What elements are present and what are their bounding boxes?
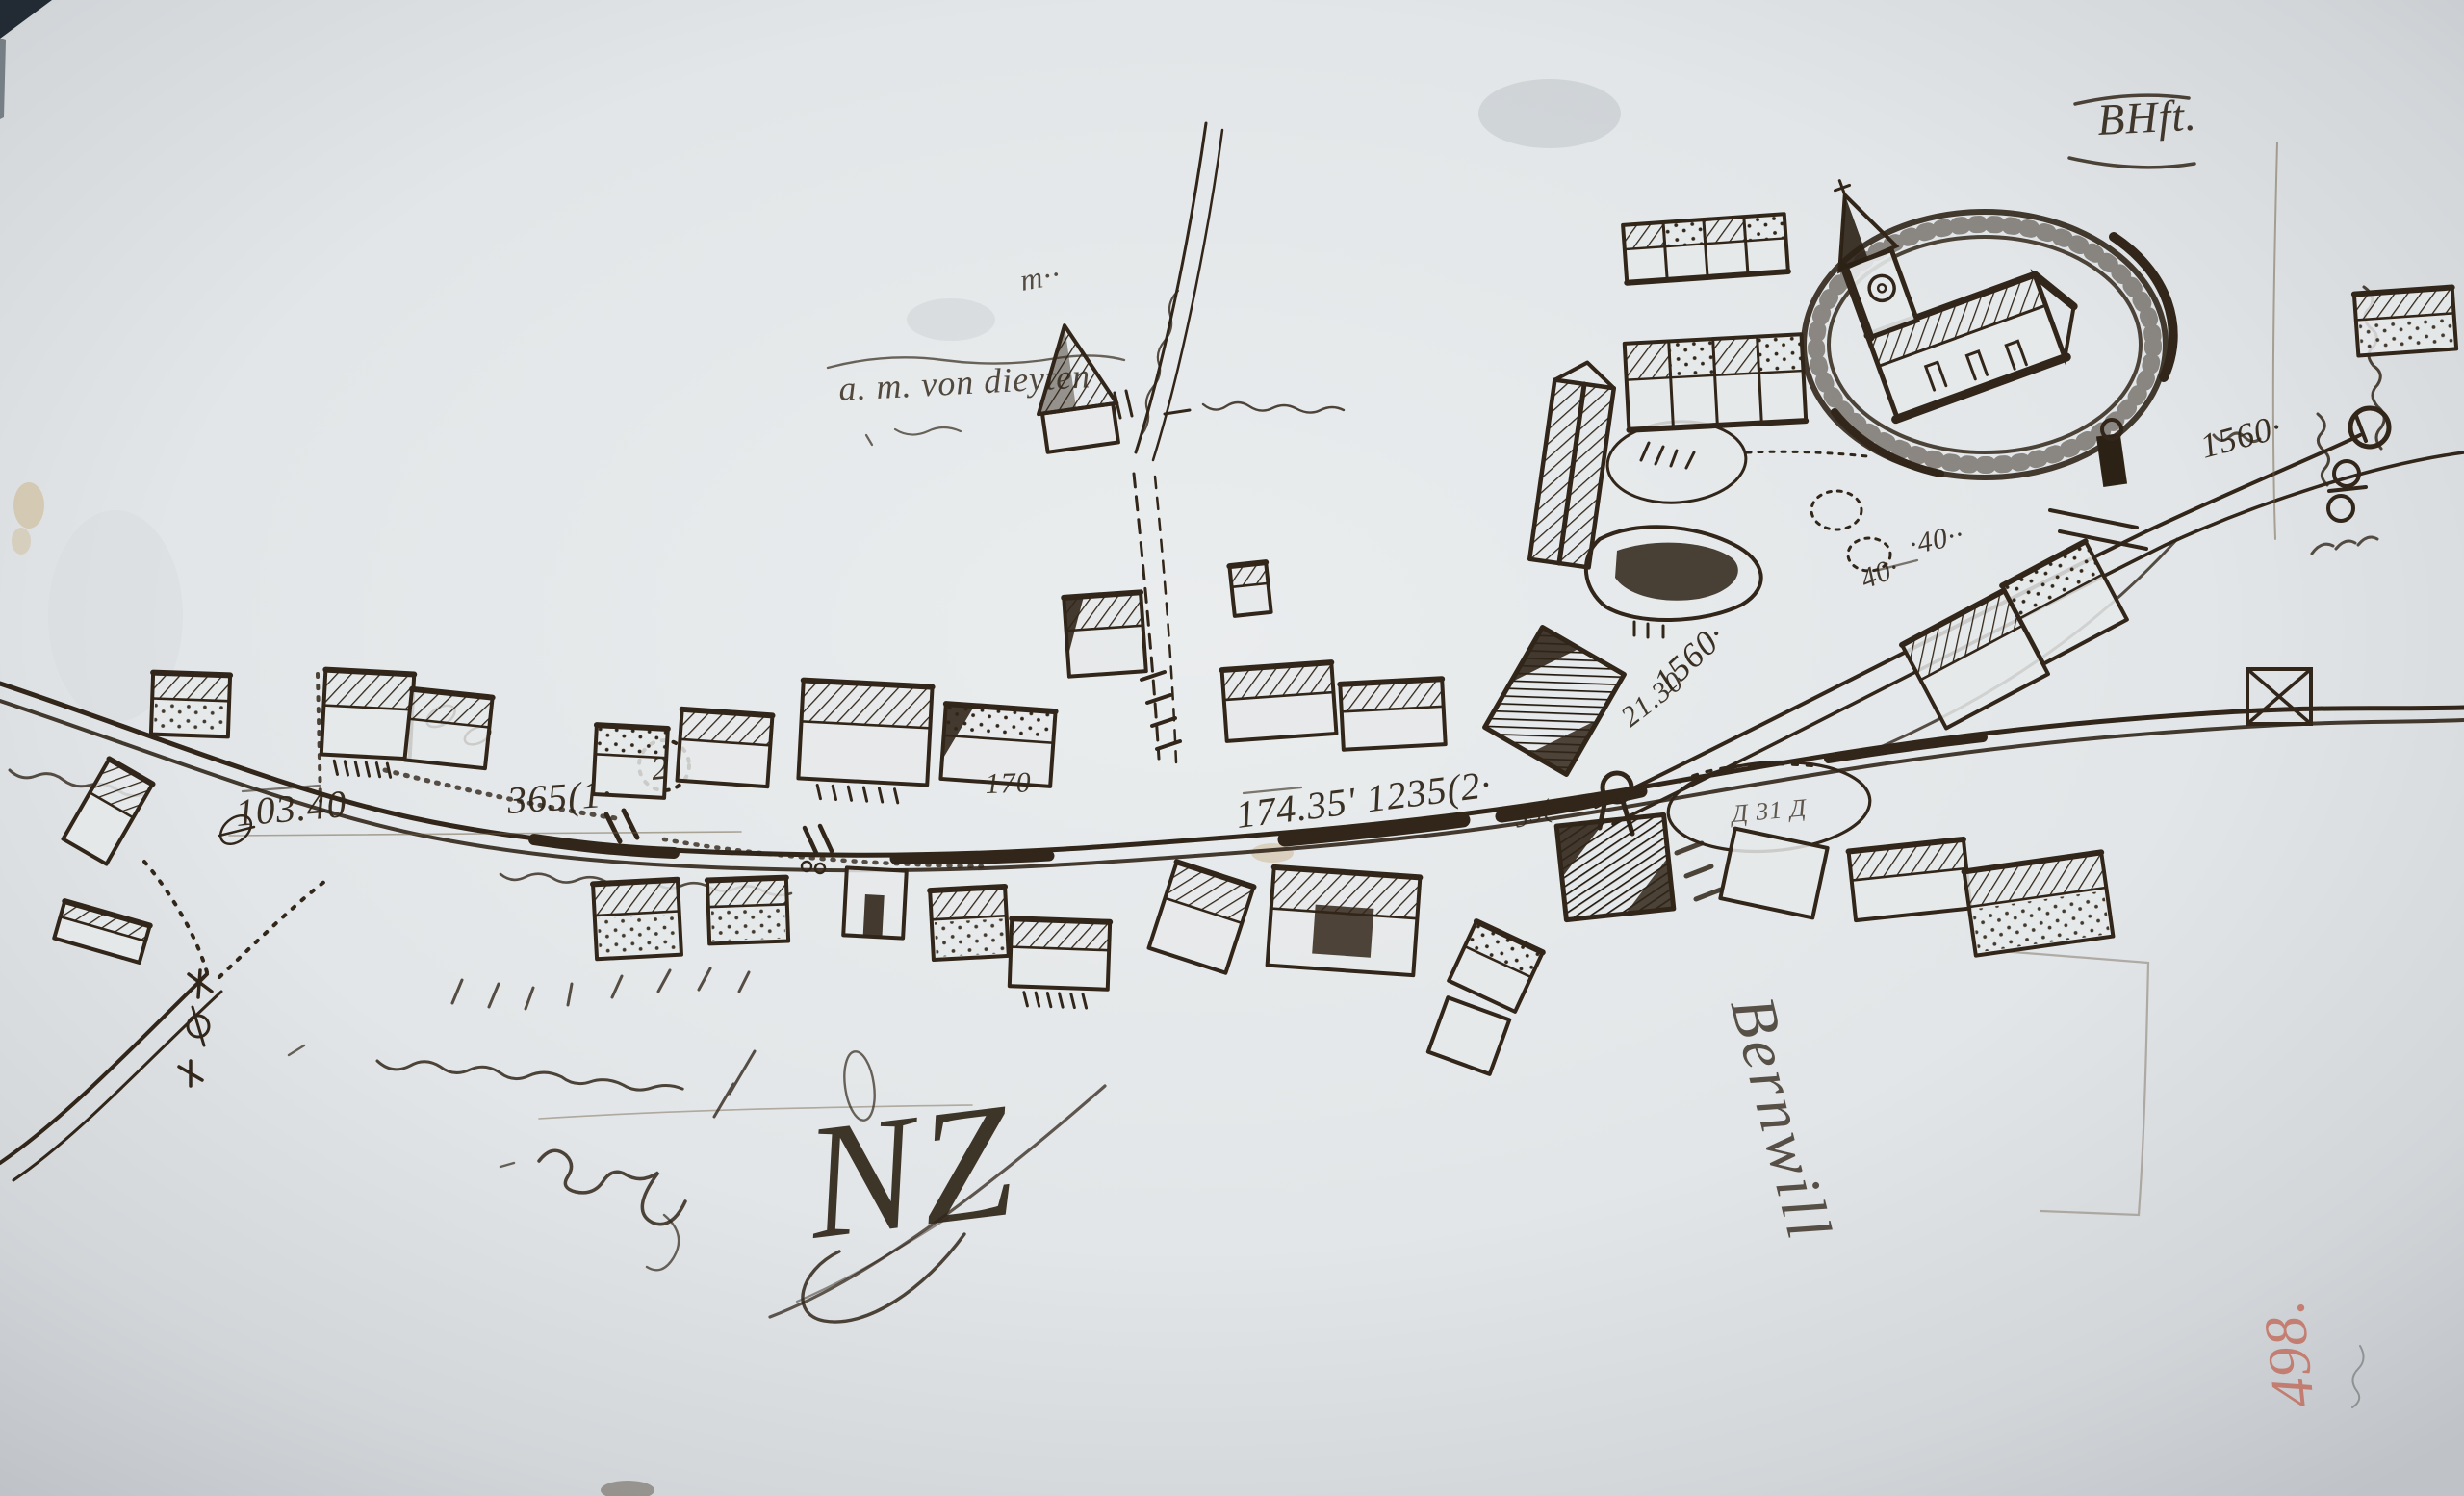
b-barn-3 [678, 709, 773, 787]
foxing-stain [13, 482, 44, 529]
b-south-3 [930, 887, 1009, 960]
b-se-2 [1964, 852, 2114, 955]
measure-365: 365(1· [504, 771, 613, 822]
b-barn-2 [404, 689, 492, 768]
scanned-map-page: BHft.m··a. m. von dieyten103.40·365(1·21… [0, 0, 2464, 1496]
b-south-2 [707, 878, 788, 944]
b-tiny [1229, 562, 1270, 616]
measure-170: 170 [985, 766, 1032, 800]
map-canvas: BHft.m··a. m. von dieyten103.40·365(1·21… [0, 0, 2464, 1496]
b-south-big [1268, 867, 1421, 975]
grey-stain [1478, 79, 1621, 148]
b-barn-5 [1340, 679, 1445, 749]
b-long-barn [1625, 334, 1806, 430]
b-crossroads-south [1556, 814, 1674, 919]
b-south-1 [593, 880, 681, 959]
b-far-right-house [2354, 288, 2456, 356]
b-top-barn [1623, 214, 1788, 283]
b-barn-4 [1222, 662, 1337, 741]
archive-number: 498. [2251, 1297, 2327, 1411]
note-m: m·· [1017, 256, 1064, 297]
b-se-1 [1849, 839, 1971, 920]
monogram: NZ [795, 1069, 1025, 1274]
inscription-top-right: BHft. [2096, 90, 2198, 144]
b-junction-house [1064, 592, 1146, 676]
b-nw-square [151, 673, 230, 737]
b-south-door [843, 867, 907, 938]
plot-number-2: 2 [650, 750, 671, 787]
